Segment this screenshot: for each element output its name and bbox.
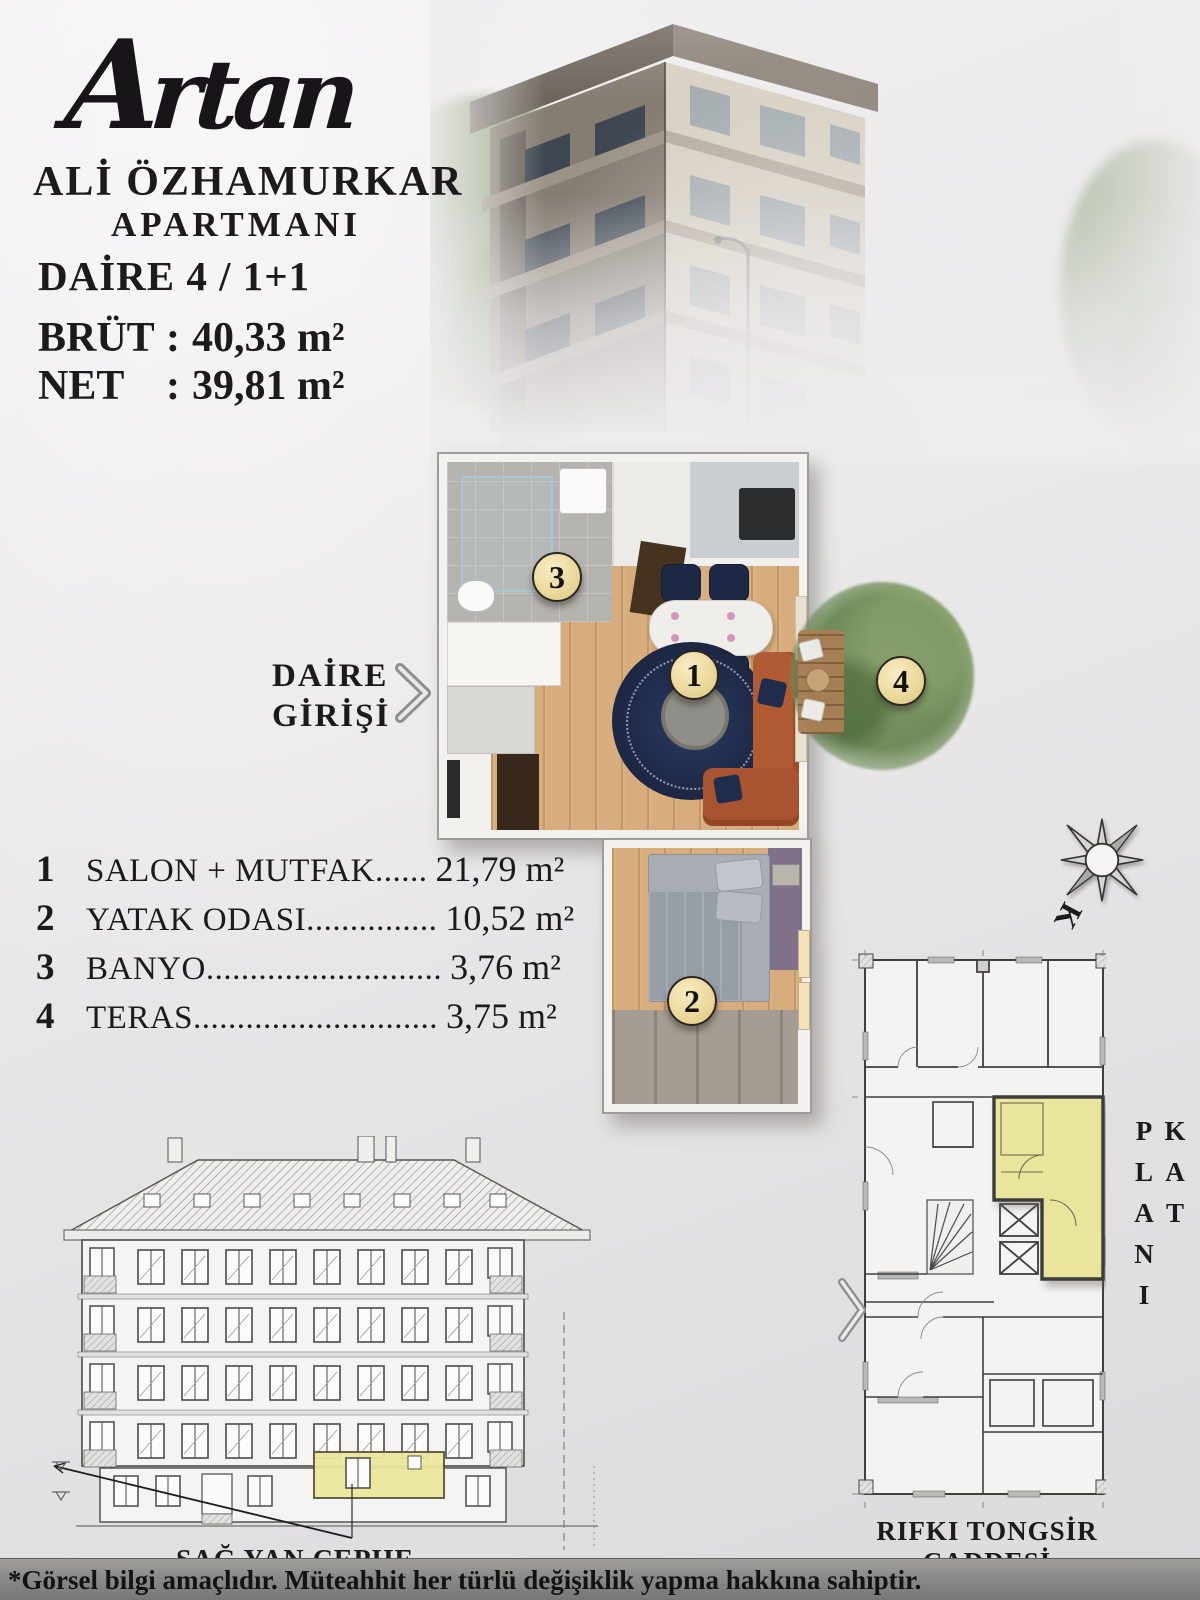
entrance-line2: GİRİŞİ [272,696,384,736]
dining-chair [661,564,701,602]
unit-title: DAİRE 4 / 1+1 [38,252,310,300]
legend-area: 3,75 m² [446,995,557,1037]
pillow [713,774,743,804]
gross-value: 40,33 m² [192,315,345,361]
legend-name: BANYO........................... [86,951,442,988]
legend-dots: ........................... [206,951,442,987]
tree-icon [1060,140,1200,465]
badge-number: 2 [684,983,700,1020]
legend-name: SALON + MUTFAK...... [86,853,428,890]
entry-door [497,754,539,830]
legend-name-text: YATAK ODASI [86,902,306,938]
terrace-table [806,668,830,692]
footer-disclaimer: *Görsel bilgi amaçlıdır. Müteahhit her t… [0,1559,1200,1600]
building-name-line1: ALİ ÖZHAMURKAR [33,158,464,206]
room-badge-terrace: 4 [876,656,926,706]
table-setting [727,612,735,620]
legend-name-text: TERAS [86,1000,193,1036]
site-plan-side-label: KAT PLANI [1128,1116,1190,1346]
gross-colon: : [166,314,192,362]
bedroom-rug [612,1010,798,1104]
room-badge-bathroom: 3 [532,552,582,602]
legend-num: 2 [36,897,86,940]
site-plan-drawing [838,942,1106,1520]
legend-dots: ...... [375,853,428,889]
net-label: NET [38,362,166,410]
legend-area: 10,52 m² [445,897,574,939]
building-render-art [430,0,1200,465]
footer-bar: *Görsel bilgi amaçlıdır. Müteahhit her t… [0,1558,1200,1600]
stairs [927,1200,973,1274]
stove [739,488,795,540]
window [798,982,810,1030]
terrace-chair [800,698,826,722]
building-name-line2: APARTMANI [58,205,414,245]
legend-row: 2 YATAK ODASI............... 10,52 m² [36,897,576,940]
badge-number: 4 [893,663,909,700]
window [798,930,810,978]
legend-num: 1 [36,848,86,891]
legend-row: 4 TERAS............................ 3,75… [36,995,576,1038]
sink [559,468,607,514]
legend-row: 1 SALON + MUTFAK...... 21,79 m² [36,848,576,891]
legend-name: TERAS............................ [86,1000,438,1037]
legend-area: 21,79 m² [436,848,565,890]
chevron-right-icon [392,662,434,724]
chevron-right-icon [842,1282,862,1338]
building-render [430,0,1200,465]
appliance-panel [447,686,535,754]
highlighted-unit [314,1452,444,1498]
brand-logo: Artan [61,18,359,153]
table-setting [671,634,679,642]
entrance-line1: DAİRE [272,656,384,696]
gross-area-row: BRÜT:40,33 m² [38,314,345,362]
legend-num: 4 [36,995,86,1038]
pillow [715,890,763,924]
pillow [715,858,764,893]
badge-number: 3 [549,559,565,596]
toilet [457,580,495,612]
net-area-row: NET:39,81 m² [38,362,345,410]
pillow [757,678,788,709]
legend-num: 3 [36,946,86,989]
net-colon: : [166,362,192,410]
floorplan-3d-main [437,452,809,840]
room-badge-salon: 1 [669,650,719,700]
legend-dots: ............... [306,902,437,938]
dining-chair [709,564,749,602]
floorplan-3d-bedroom [602,838,812,1114]
gross-label: BRÜT [38,314,166,362]
table-setting [727,634,735,642]
tv-panel [447,760,460,818]
legend-name-text: BANYO [86,951,206,987]
brochure-page: Artan ALİ ÖZHAMURKAR APARTMANI DAİRE 4 /… [0,0,1200,1600]
badge-number: 1 [686,657,702,694]
wardrobe [447,622,561,686]
nightstand [772,864,800,886]
table-setting [671,612,679,620]
legend-row: 3 BANYO........................... 3,76 … [36,946,576,989]
legend-name-text: SALON + MUTFAK [86,853,375,889]
entrance-label: DAİRE GİRİŞİ [272,656,384,736]
legend-dots: ............................ [193,1000,438,1036]
room-badge-bedroom: 2 [667,976,717,1026]
legend-name: YATAK ODASI............... [86,902,437,939]
legend-area: 3,76 m² [450,946,561,988]
elevation-drawing [52,1136,600,1556]
net-value: 39,81 m² [192,363,345,409]
